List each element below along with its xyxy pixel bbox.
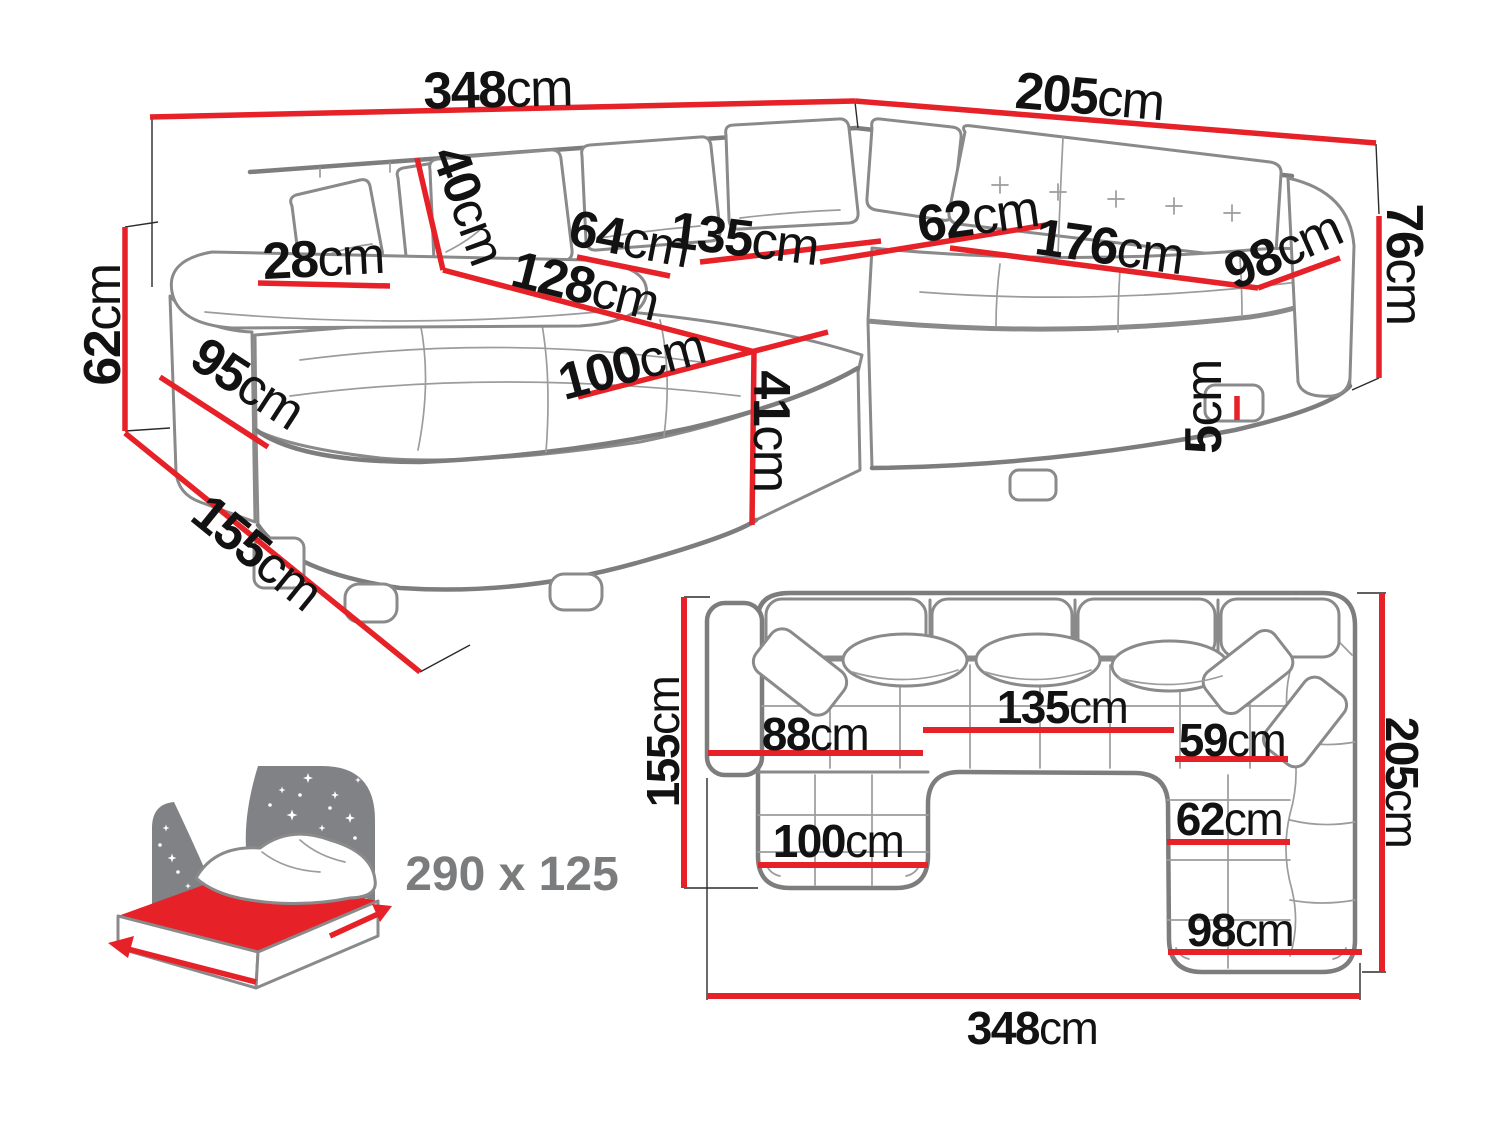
sleep-function-icon: 290 x 125 [108,766,619,988]
dim-label-205: 205cm [1013,62,1166,132]
plan-dim-label-100: 100cm [773,815,904,867]
plan-dim-label-98: 98cm [1187,904,1294,956]
plan-lumbar-pillow-2 [976,634,1100,686]
perspective-view: 348cm 205cm 40cm 28cm 62cm 95cm 155cm 12… [74,59,1433,672]
plan-left-armrest [707,603,762,775]
plan-view: 155cm 88cm 135cm 59cm 62cm 100cm 98cm 20… [637,593,1428,1054]
sofa-dimensions-diagram: 348cm 205cm 40cm 28cm 62cm 95cm 155cm 12… [0,0,1500,1125]
plan-dim-label-59: 59cm [1179,714,1286,766]
right-bench-foot [1010,470,1056,500]
plan-dim-label-205: 205cm [1376,717,1428,848]
plan-dim-label-155: 155cm [637,677,689,808]
plan-dim-label-135: 135cm [997,681,1128,733]
chaise-foot-right [550,574,602,610]
plan-dim-label-62: 62cm [1176,793,1283,845]
plan-dim-label-88: 88cm [762,708,869,760]
dim-label-41: 41cm [742,370,800,491]
dim-label-348: 348cm [423,59,573,120]
dim-label-62-left: 62cm [74,264,132,385]
plan-lumbar-pillow-1 [843,634,967,686]
dim-label-28: 28cm [261,227,385,291]
dim-label-76: 76cm [1375,203,1433,324]
plan-dim-label-348: 348cm [967,1002,1098,1054]
bed-size-label: 290 x 125 [405,848,619,901]
dim-label-5: 5cm [1175,360,1233,454]
diagram-canvas: 348cm 205cm 40cm 28cm 62cm 95cm 155cm 12… [0,0,1500,1125]
